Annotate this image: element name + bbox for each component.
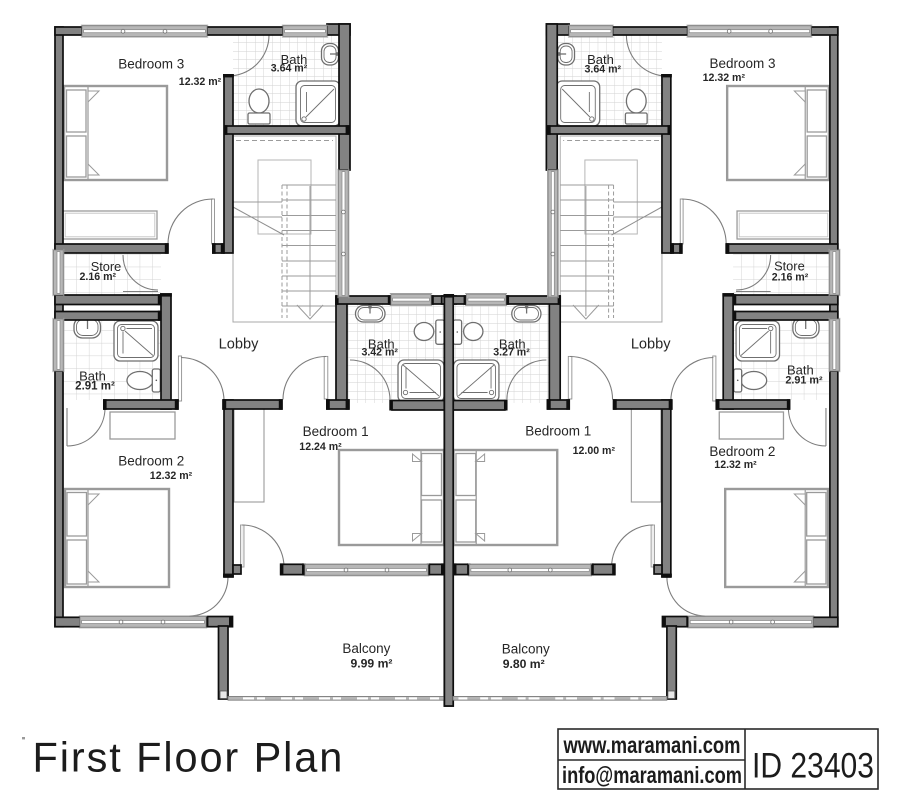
svg-text:Balcony: Balcony — [342, 641, 390, 656]
svg-text:Lobby: Lobby — [631, 337, 671, 353]
svg-text:12.32 m²: 12.32 m² — [150, 470, 193, 482]
svg-text:3.64 m²: 3.64 m² — [271, 63, 308, 75]
svg-text:Bedroom 1: Bedroom 1 — [525, 424, 591, 439]
svg-text:3.42 m²: 3.42 m² — [361, 347, 398, 359]
svg-text:Bedroom 2: Bedroom 2 — [118, 453, 184, 468]
svg-text:12.24 m²: 12.24 m² — [299, 441, 342, 453]
svg-text:3.27 m²: 3.27 m² — [493, 347, 530, 359]
svg-text:12.32 m²: 12.32 m² — [714, 459, 757, 471]
svg-text:ID 23403: ID 23403 — [752, 747, 874, 786]
svg-text:Bedroom 3: Bedroom 3 — [118, 56, 184, 71]
svg-text:9.99 m²: 9.99 m² — [350, 656, 392, 670]
svg-text:info@maramani.com: info@maramani.com — [562, 762, 742, 788]
svg-text:First Floor Plan: First Floor Plan — [33, 734, 345, 781]
svg-text:2.91 m²: 2.91 m² — [785, 375, 823, 387]
svg-text:12.00 m²: 12.00 m² — [573, 445, 616, 457]
svg-text:2.91 m²: 2.91 m² — [75, 381, 115, 393]
svg-text:2.16 m²: 2.16 m² — [80, 271, 117, 283]
svg-text:www.maramani.com: www.maramani.com — [563, 732, 741, 758]
svg-text:12.32 m²: 12.32 m² — [703, 72, 746, 84]
svg-text:Bedroom 3: Bedroom 3 — [709, 56, 775, 71]
svg-text:Lobby: Lobby — [219, 336, 259, 352]
svg-text:Bedroom 1: Bedroom 1 — [303, 424, 369, 439]
svg-text:3.64 m²: 3.64 m² — [585, 64, 622, 76]
svg-text:Balcony: Balcony — [502, 641, 550, 656]
svg-text:9.80 m²: 9.80 m² — [503, 657, 545, 671]
svg-text:Bedroom 2: Bedroom 2 — [709, 444, 775, 459]
svg-text:12.32 m²: 12.32 m² — [179, 76, 222, 88]
svg-text:2.16 m²: 2.16 m² — [772, 272, 809, 284]
